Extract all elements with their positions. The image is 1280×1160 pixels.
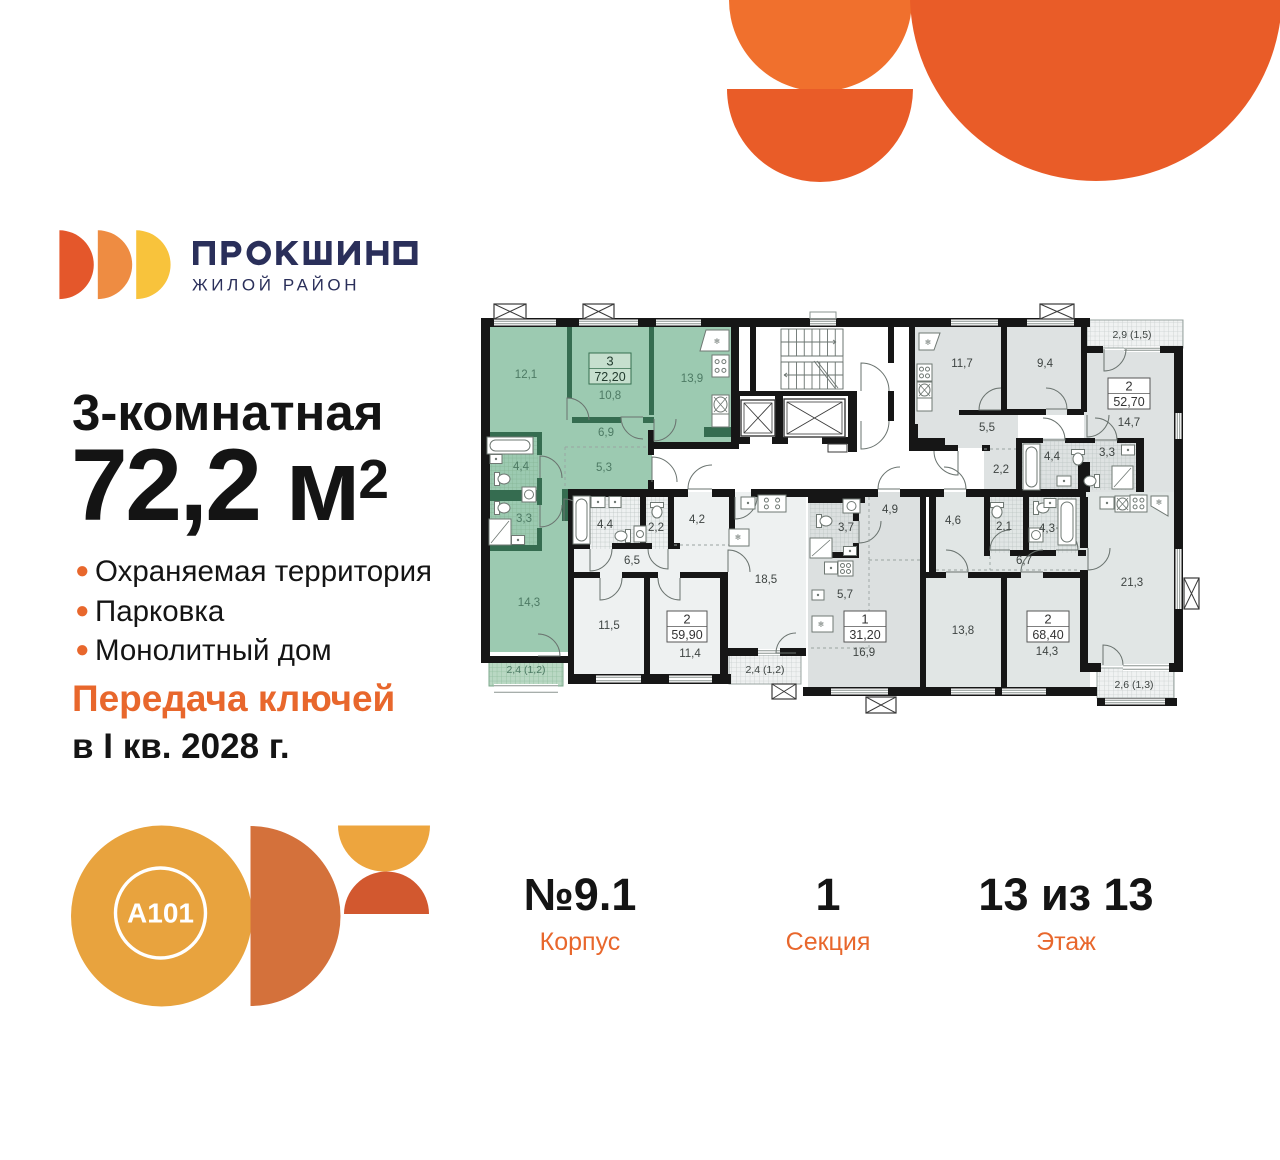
svg-text:14,3: 14,3 xyxy=(518,597,540,609)
svg-text:5,3: 5,3 xyxy=(596,462,612,474)
svg-text:A101: A101 xyxy=(127,898,194,929)
svg-text:2,4 (1,2): 2,4 (1,2) xyxy=(745,664,784,676)
svg-text:52,70: 52,70 xyxy=(1113,395,1144,409)
svg-text:11,5: 11,5 xyxy=(598,620,620,632)
svg-text:3,3: 3,3 xyxy=(1099,447,1115,459)
svg-text:5,7: 5,7 xyxy=(837,589,853,601)
svg-text:18,5: 18,5 xyxy=(755,574,777,586)
svg-text:2: 2 xyxy=(1044,612,1051,627)
svg-text:16,9: 16,9 xyxy=(853,647,875,659)
svg-text:6,5: 6,5 xyxy=(624,555,640,567)
svg-text:2,2: 2,2 xyxy=(648,522,664,534)
svg-text:4,4: 4,4 xyxy=(513,461,530,473)
svg-text:2,1: 2,1 xyxy=(996,521,1012,533)
svg-text:21,3: 21,3 xyxy=(1121,577,1143,589)
svg-text:❄: ❄ xyxy=(735,533,742,542)
svg-text:ЖИЛОЙ РАЙОН: ЖИЛОЙ РАЙОН xyxy=(192,276,360,295)
svg-text:4,3: 4,3 xyxy=(1039,523,1055,535)
svg-text:4,6: 4,6 xyxy=(945,515,961,527)
svg-text:2,6 (1,3): 2,6 (1,3) xyxy=(1114,679,1153,691)
svg-text:13,8: 13,8 xyxy=(952,625,974,637)
svg-text:3,3: 3,3 xyxy=(516,513,532,525)
svg-text:2: 2 xyxy=(1125,379,1132,394)
svg-text:3: 3 xyxy=(606,354,613,369)
svg-text:❄: ❄ xyxy=(925,338,932,347)
svg-text:3,7: 3,7 xyxy=(838,522,854,534)
svg-text:❄: ❄ xyxy=(714,337,721,346)
svg-text:4,9: 4,9 xyxy=(882,504,898,516)
svg-text:2: 2 xyxy=(683,612,690,627)
svg-text:11,7: 11,7 xyxy=(951,358,973,370)
svg-text:10,8: 10,8 xyxy=(599,390,621,402)
svg-text:31,20: 31,20 xyxy=(849,628,880,642)
svg-text:2,4 (1,2): 2,4 (1,2) xyxy=(506,664,545,676)
svg-text:14,7: 14,7 xyxy=(1118,417,1140,429)
svg-text:12,1: 12,1 xyxy=(515,369,537,381)
svg-text:72,20: 72,20 xyxy=(594,370,625,384)
svg-text:1: 1 xyxy=(861,612,868,627)
svg-text:4,4: 4,4 xyxy=(1044,451,1061,463)
svg-text:6,7: 6,7 xyxy=(1016,555,1032,567)
svg-text:59,90: 59,90 xyxy=(671,628,702,642)
svg-text:6,9: 6,9 xyxy=(598,427,614,439)
svg-text:68,40: 68,40 xyxy=(1032,628,1063,642)
svg-text:5,5: 5,5 xyxy=(979,422,995,434)
svg-text:4,4: 4,4 xyxy=(597,519,614,531)
svg-text:4,2: 4,2 xyxy=(689,514,705,526)
svg-text:13,9: 13,9 xyxy=(681,373,703,385)
svg-text:2,9 (1,5): 2,9 (1,5) xyxy=(1112,329,1151,341)
svg-text:❄: ❄ xyxy=(818,620,825,629)
svg-text:2,2: 2,2 xyxy=(993,464,1009,476)
svg-text:❄: ❄ xyxy=(1156,498,1163,507)
svg-text:11,4: 11,4 xyxy=(679,648,701,660)
svg-text:9,4: 9,4 xyxy=(1037,358,1054,370)
svg-text:14,3: 14,3 xyxy=(1036,646,1058,658)
